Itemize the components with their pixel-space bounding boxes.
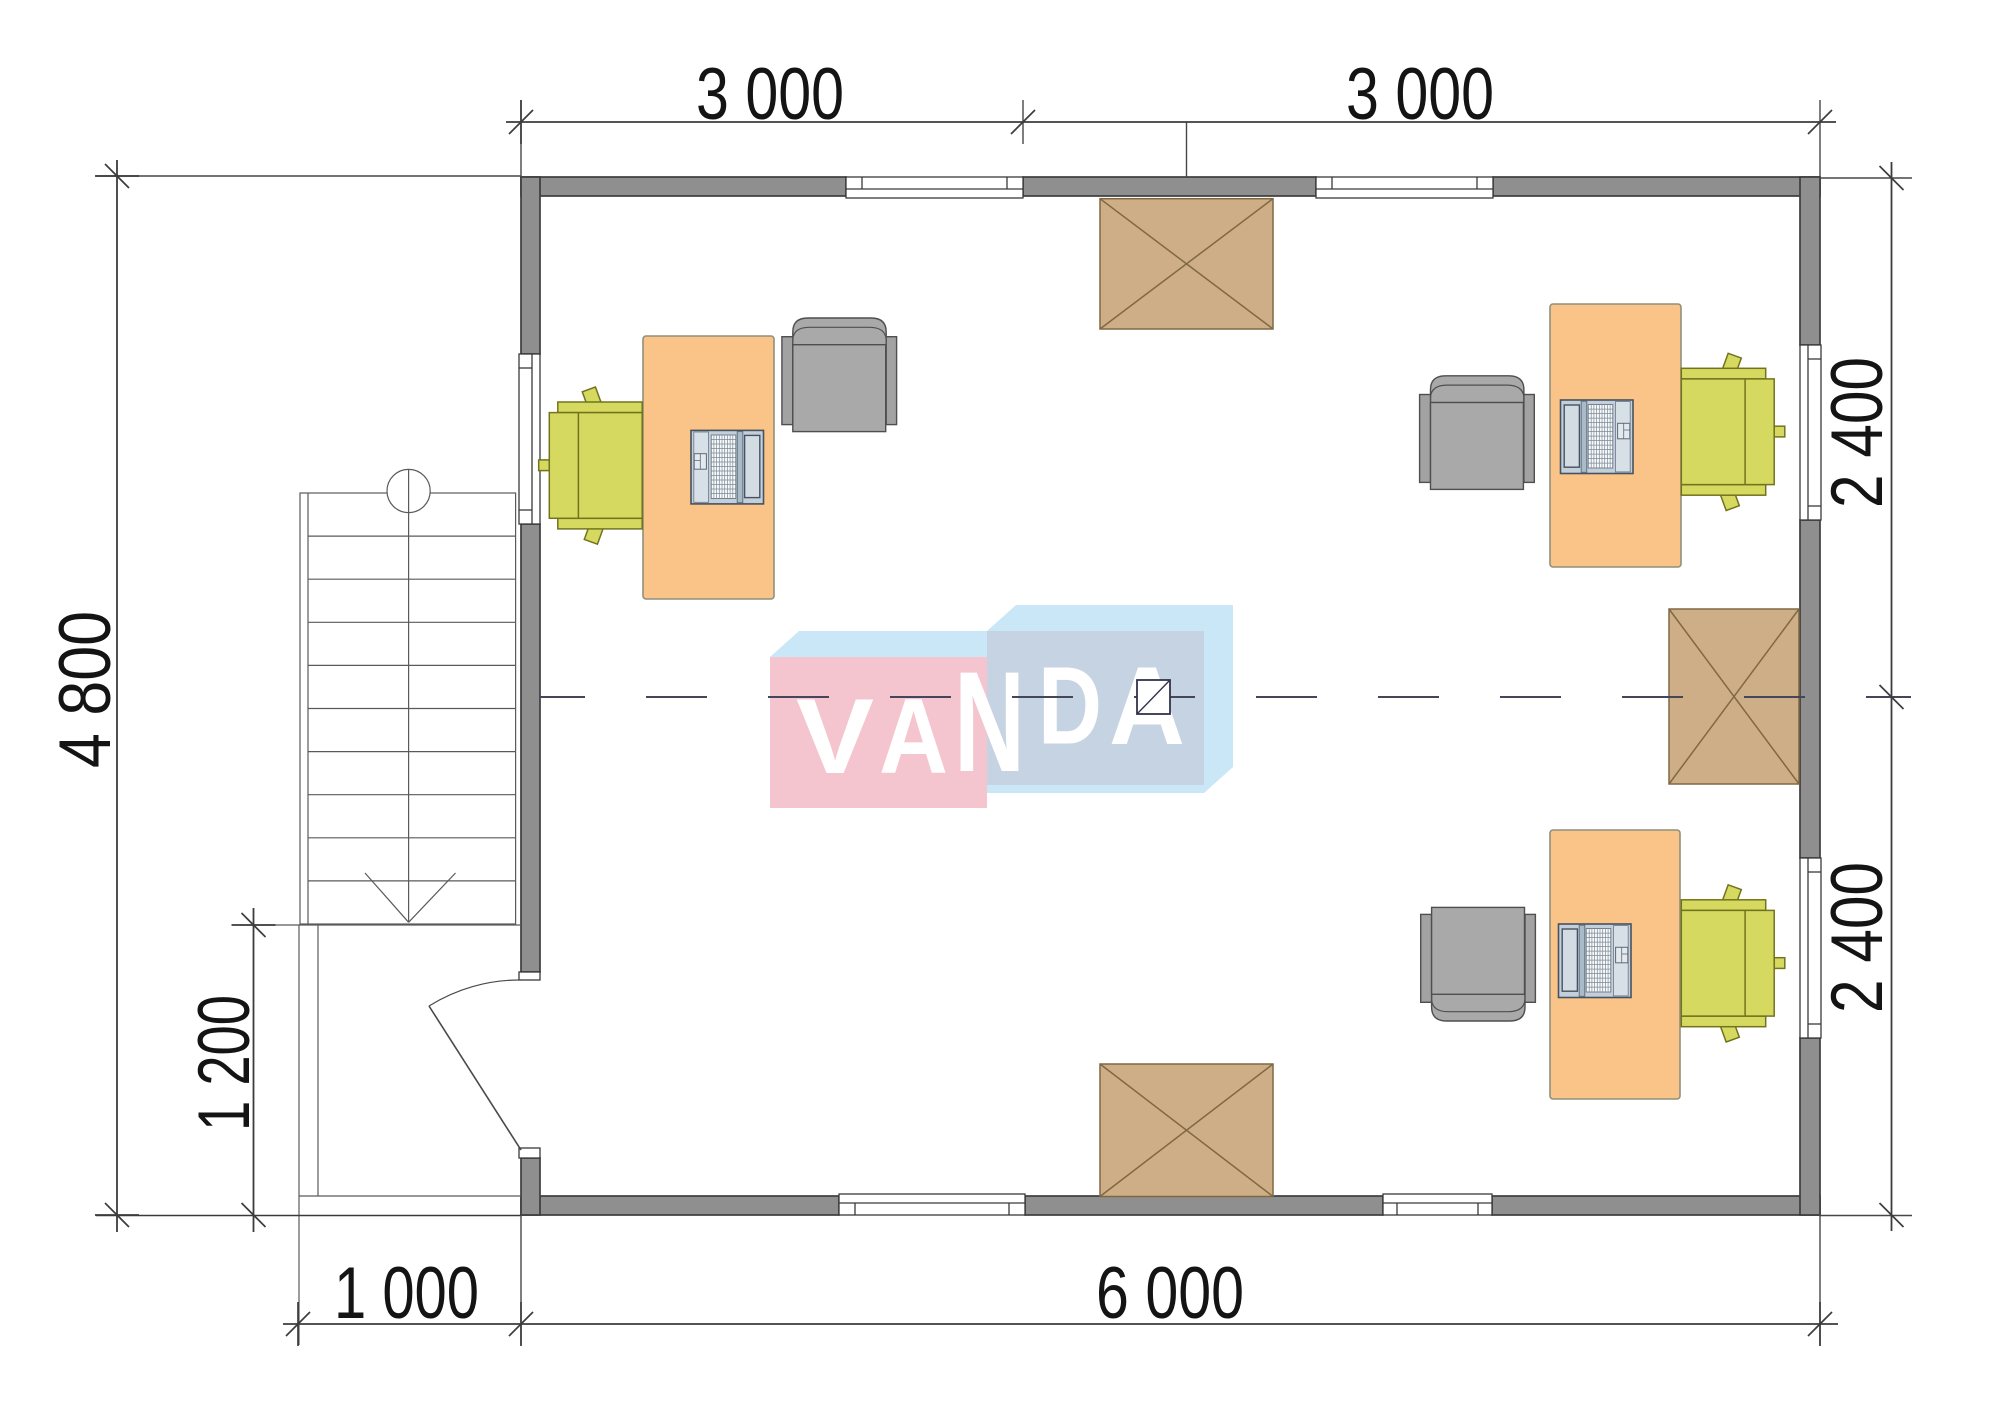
svg-text:1 200: 1 200 — [184, 995, 265, 1131]
svg-text:N: N — [954, 643, 1025, 802]
svg-text:3 000: 3 000 — [1346, 54, 1494, 135]
svg-text:6 000: 6 000 — [1096, 1253, 1244, 1334]
svg-text:2 400: 2 400 — [1817, 357, 1898, 508]
svg-text:V: V — [796, 676, 874, 796]
svg-text:D: D — [1038, 645, 1102, 768]
svg-text:4 800: 4 800 — [45, 611, 126, 768]
svg-text:3 000: 3 000 — [696, 54, 844, 135]
svg-text:1 000: 1 000 — [334, 1253, 479, 1334]
svg-text:2 400: 2 400 — [1817, 862, 1898, 1013]
svg-text:A: A — [879, 676, 948, 796]
